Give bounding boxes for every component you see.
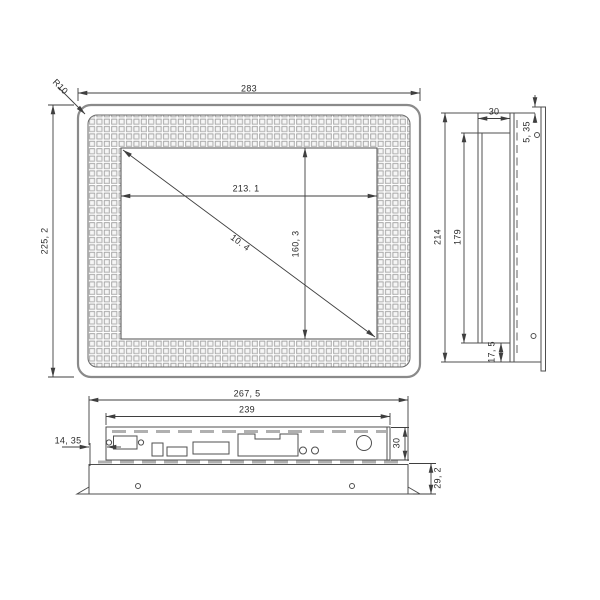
technical-drawing-canvas: 283 225, 2 213. 1 160, 3 10. 4 R10 30 21… (0, 0, 600, 600)
dim-bottom-left-offset: 14, 35 (55, 437, 82, 446)
dim-display-width: 213. 1 (233, 185, 260, 194)
dim-side-bottom-step: 17, 5 (488, 341, 497, 363)
dim-display-height: 160, 3 (292, 231, 301, 258)
mount-foot-left (77, 487, 89, 494)
mount-foot-right (408, 487, 420, 494)
dim-front-overall-height: 225, 2 (41, 228, 50, 255)
dim-side-depth: 30 (489, 108, 500, 117)
front-bezel-slab (89, 465, 408, 495)
dim-side-hole-offset: 5, 35 (523, 121, 532, 143)
dim-side-inner-height: 179 (454, 229, 463, 245)
mounting-hole-top (535, 133, 540, 138)
mounting-hole-bottom (531, 334, 536, 339)
technical-drawing (0, 0, 600, 600)
dim-bottom-bezel-width: 267, 5 (234, 390, 261, 399)
dim-bottom-bezel-depth: 29, 2 (434, 467, 443, 489)
dim-bottom-chassis-width: 239 (239, 406, 255, 415)
side-bezel-plate (541, 107, 546, 371)
dim-front-overall-width: 283 (241, 85, 257, 94)
dim-bottom-chassis-depth: 30 (393, 438, 402, 449)
dim-side-height: 214 (434, 229, 443, 245)
